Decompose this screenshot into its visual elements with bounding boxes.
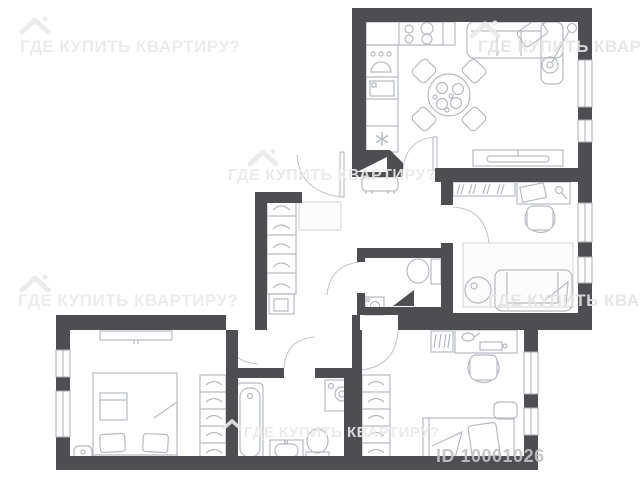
wall-hall-top	[255, 192, 302, 203]
house-chimney-dot	[271, 149, 276, 154]
house-chimney-dot	[493, 21, 498, 26]
living-room-window-1	[578, 60, 592, 107]
watermark-text-bottom: ГДЕ КУПИТЬ КВАРТИРУ?	[244, 424, 440, 441]
wall-bedroom-east	[226, 330, 238, 456]
office-window-1	[578, 203, 592, 242]
wall-bath-top	[238, 368, 284, 378]
bedroom-window-1	[56, 350, 70, 377]
house-chimney-dot	[43, 17, 48, 22]
house-chimney-dot	[43, 275, 48, 280]
wall-living-south	[435, 168, 578, 182]
office-window-2	[578, 257, 592, 283]
wall-office-south	[441, 313, 592, 330]
doormat-rug	[299, 202, 341, 230]
living-room-window-2	[578, 120, 592, 142]
wall-office-west	[441, 182, 453, 205]
wall-bedroom-top	[56, 315, 226, 330]
bedroom-window-2	[56, 391, 70, 437]
watermark-text: ГДЕ КУПИТЬ КВАРТИРУ?	[18, 291, 238, 310]
floor-plan: ГДЕ КУПИТЬ КВАРТИРУ? ГДЕ КУПИТЬ КВАРТИРУ…	[0, 0, 640, 480]
floor	[0, 0, 640, 480]
wall-wc-bottom	[357, 307, 453, 315]
wall-wc-top	[357, 248, 441, 258]
wall-north	[352, 8, 592, 22]
watermark-text: ГДЕ КУПИТЬ КВАРТИРУ?	[488, 291, 640, 310]
wall-hall-west	[255, 192, 267, 330]
floor-plan-screenshot: ГДЕ КУПИТЬ КВАРТИРУ? ГДЕ КУПИТЬ КВАРТИРУ…	[0, 0, 640, 480]
kids-room-window-1	[524, 352, 538, 394]
watermark-text: ГДЕ КУПИТЬ КВАРТИРУ?	[20, 37, 240, 56]
watermark-text: ГДЕ КУПИТЬ КВАРТИРУ?	[478, 37, 640, 56]
kids-room-window-2	[524, 408, 538, 435]
listing-id-watermark: ID 10001026	[436, 446, 545, 466]
wall-kitchen-west	[352, 8, 366, 150]
watermark-text: ГДЕ КУПИТЬ КВАРТИРУ?	[228, 167, 436, 184]
wall-kids-west	[352, 330, 362, 368]
